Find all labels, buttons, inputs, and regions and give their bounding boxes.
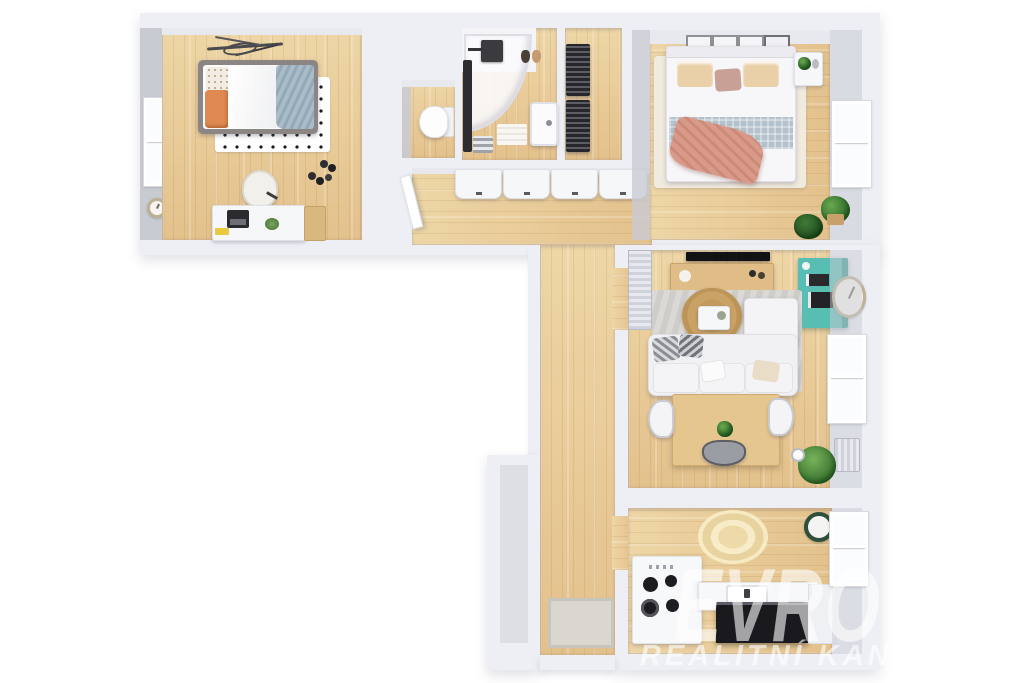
wall-corridor-bottom <box>540 655 615 670</box>
bedroom-master-left-wall-face <box>632 30 650 240</box>
nightstand <box>794 52 823 86</box>
shower-arm <box>468 48 482 51</box>
nightstand-plant <box>798 57 811 70</box>
wall-niche-face <box>500 465 528 643</box>
bath-mat <box>497 124 527 145</box>
double-bed <box>666 46 796 182</box>
washbasin <box>530 102 558 146</box>
burner-1 <box>643 577 658 592</box>
single-bed <box>198 60 318 134</box>
side-table-wood <box>304 206 326 241</box>
books-stack-1 <box>806 274 829 286</box>
pillow-white <box>699 359 726 383</box>
doormat <box>548 598 614 648</box>
shower-head <box>481 40 503 62</box>
pillow-beige-left <box>677 61 713 87</box>
bedroom-master-window <box>832 101 871 187</box>
wardrobe-unit-2 <box>503 169 550 199</box>
hanging-bag-tan <box>532 50 541 63</box>
kitchen-island-black-front <box>716 602 808 643</box>
sink-faucet <box>744 589 750 598</box>
tv <box>686 252 770 261</box>
desk <box>212 205 306 241</box>
living-door-panel <box>628 250 652 330</box>
wardrobe-unit-1 <box>455 169 502 199</box>
corner-sofa <box>648 334 798 396</box>
kitchen-round-rug <box>698 510 768 564</box>
corridor-floor <box>540 245 615 655</box>
pillow-beige-right <box>743 61 779 87</box>
blanket-blue <box>276 65 314 129</box>
burner-3 <box>641 599 659 617</box>
shelving-rack-upper <box>566 44 590 96</box>
dining-chair-bottom <box>702 440 746 466</box>
dumbbells <box>308 160 338 186</box>
pillow-patterned-2 <box>678 334 704 358</box>
hanging-bag-dark <box>521 50 530 63</box>
desk-chair <box>240 168 276 208</box>
headboard <box>667 47 795 58</box>
dining-chair-right <box>768 398 794 436</box>
kitchen-counter-left <box>632 556 702 644</box>
wall-corridor-left-upper <box>528 245 540 457</box>
yellow-notebook <box>215 228 229 235</box>
laptop <box>227 210 249 228</box>
dining-chair-left <box>648 400 674 438</box>
toilet <box>419 103 453 139</box>
burner-4 <box>666 599 679 612</box>
bedroom-small-top-face <box>162 28 362 35</box>
pillow-beige <box>752 359 781 382</box>
towel-rack <box>473 136 493 153</box>
living-wall-socket <box>791 448 805 462</box>
master-plant-dark <box>794 214 823 239</box>
wc-top-face <box>402 80 455 87</box>
burner-2 <box>665 575 677 587</box>
wc-left-wall-face <box>402 80 411 158</box>
coffee-table <box>698 306 730 330</box>
table-plant <box>717 421 733 437</box>
pillow-patterned-1 <box>651 335 680 362</box>
living-radiator <box>834 438 860 472</box>
tv-console <box>670 263 774 291</box>
desk-plant <box>265 218 279 230</box>
living-window <box>828 335 866 423</box>
pillow-mauve-center <box>714 68 741 92</box>
pillow-orange <box>205 90 229 128</box>
wall-branch-art <box>205 37 285 57</box>
kitchen-window <box>830 512 868 586</box>
bathroom-black-cabinet <box>463 60 472 152</box>
floor-plan-canvas: EVRO REALITNÍ KAN <box>0 0 1024 683</box>
shelving-rack-lower <box>566 100 590 152</box>
wardrobe-unit-3 <box>551 169 598 199</box>
master-plant-pot <box>827 214 844 225</box>
faucet <box>546 120 552 126</box>
